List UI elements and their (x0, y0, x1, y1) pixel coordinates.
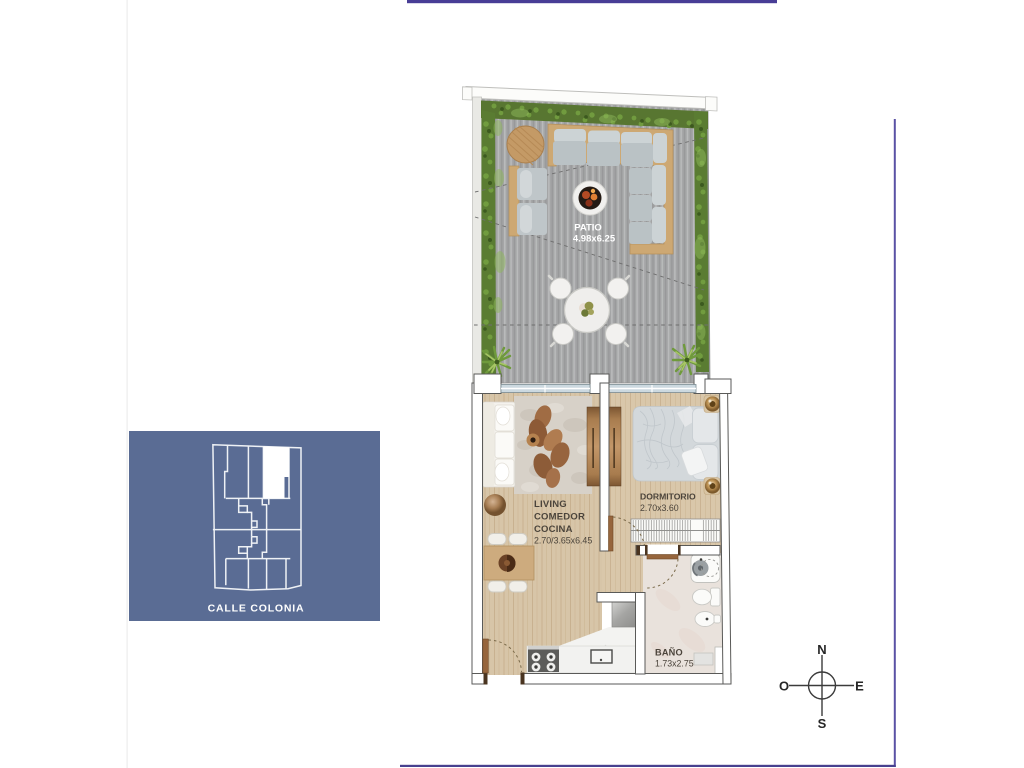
svg-text:LIVING: LIVING (534, 499, 567, 510)
svg-text:E: E (855, 679, 864, 694)
svg-text:S: S (818, 716, 827, 731)
svg-text:COCINA: COCINA (534, 524, 573, 535)
svg-text:DORMITORIO: DORMITORIO (640, 492, 696, 502)
svg-text:1.73x2.75: 1.73x2.75 (655, 659, 694, 669)
svg-text:CALLE COLONIA: CALLE COLONIA (208, 603, 305, 615)
svg-text:4.98x6.25: 4.98x6.25 (573, 234, 616, 245)
svg-text:BAÑO: BAÑO (655, 648, 683, 658)
svg-text:2.70x3.60: 2.70x3.60 (640, 503, 679, 513)
svg-text:PATIO: PATIO (574, 223, 602, 234)
svg-text:N: N (817, 642, 826, 657)
svg-text:COMEDOR: COMEDOR (534, 512, 585, 523)
svg-text:O: O (779, 679, 789, 694)
svg-text:2.70/3.65x6.45: 2.70/3.65x6.45 (534, 536, 592, 546)
